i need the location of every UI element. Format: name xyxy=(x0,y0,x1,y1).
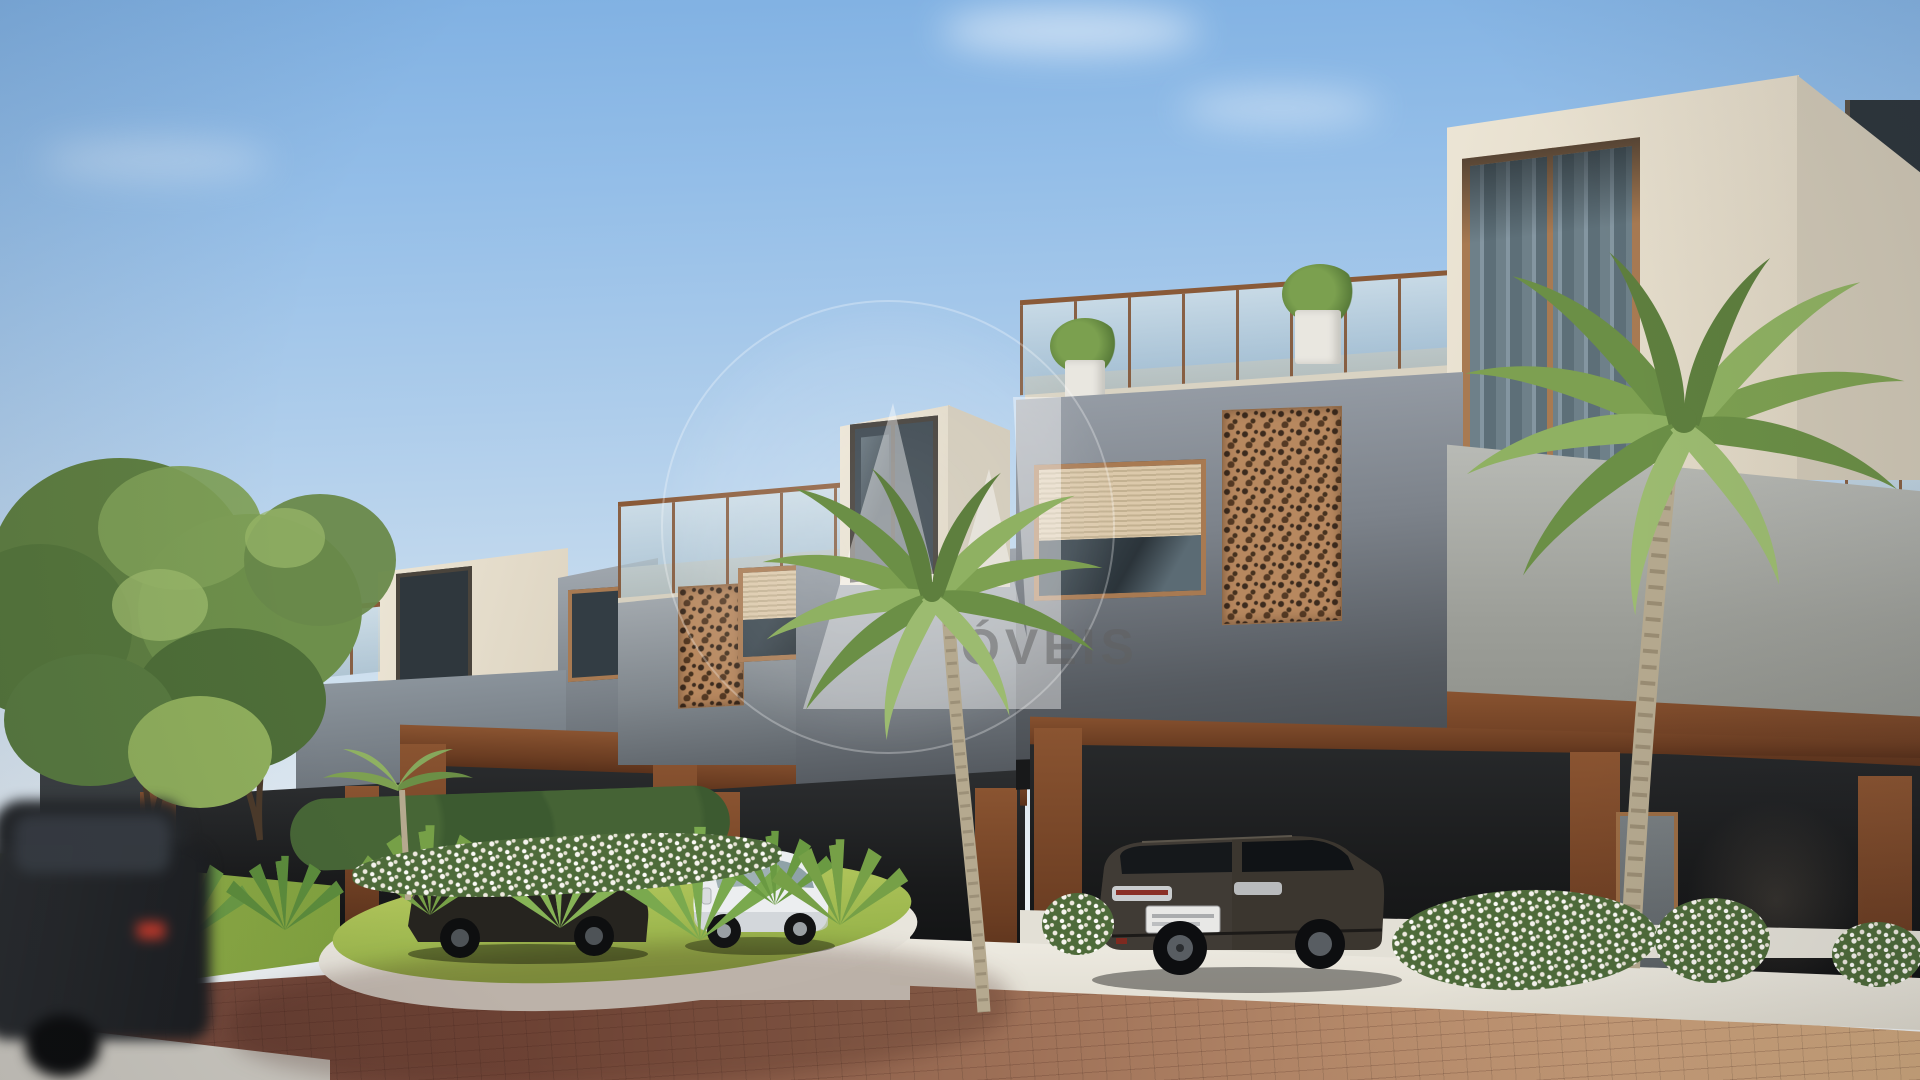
car-taillight xyxy=(137,922,165,939)
white-flower-bush xyxy=(1832,922,1920,987)
white-flower-bush xyxy=(1655,898,1770,983)
motion-blurred-car xyxy=(0,800,220,1080)
cloud xyxy=(940,8,1200,54)
car-wheel xyxy=(25,1015,100,1077)
car-body xyxy=(0,845,210,1040)
architectural-render: ÓVEIS xyxy=(0,0,1920,1080)
foreground-plants xyxy=(0,690,1920,1080)
car-window xyxy=(15,815,170,873)
white-flower-bush xyxy=(1042,893,1114,955)
